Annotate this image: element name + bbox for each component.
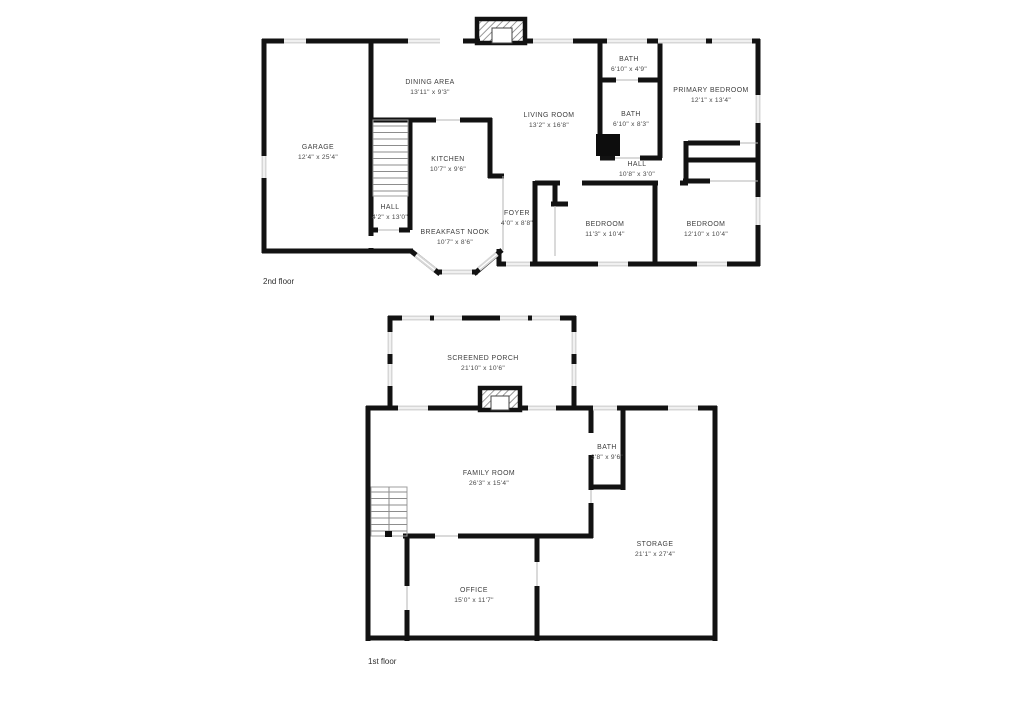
- room-dims-porch: 21'10" x 10'6": [461, 365, 505, 372]
- room-dims-dining: 13'11" x 9'3": [410, 89, 450, 96]
- room-dims-kitchen: 10'7" x 9'6": [430, 166, 466, 173]
- firebox: [492, 28, 512, 43]
- room-label-living: LIVING ROOM: [524, 112, 575, 119]
- room-label-family: FAMILY ROOM: [463, 470, 515, 477]
- room-dims-hall-lower: 4'2" x 13'0": [372, 214, 408, 221]
- firebox: [491, 396, 509, 410]
- room-dims-foyer: 4'0" x 8'8": [501, 220, 533, 227]
- room-label-bath-top: BATH: [619, 56, 639, 63]
- room-dims-bedroom1: 11'3" x 10'4": [585, 231, 625, 238]
- room-dims-breakfast: 10'7" x 8'6": [437, 239, 473, 246]
- room-dims-bath-mid: 6'10" x 8'3": [613, 121, 649, 128]
- room-dims-living: 13'2" x 16'8": [529, 122, 569, 129]
- room-label-hall-lower: HALL: [380, 204, 399, 211]
- room-dims-office: 15'0" x 11'7": [454, 597, 494, 604]
- room-labels-second-floor: GARAGE 12'4" x 25'4" DINING AREA 13'11" …: [298, 56, 749, 246]
- staircase-first-floor: [371, 487, 407, 537]
- room-dims-garage: 12'4" x 25'4": [298, 154, 338, 161]
- floor-plan-svg: GARAGE 12'4" x 25'4" DINING AREA 13'11" …: [0, 0, 1024, 719]
- room-label-bath-mid: BATH: [621, 111, 641, 118]
- room-label-primary: PRIMARY BEDROOM: [673, 87, 748, 94]
- room-label-foyer: FOYER: [504, 210, 530, 217]
- room-dims-hall-upper: 10'8" x 3'0": [619, 171, 655, 178]
- window-stripe: [390, 318, 698, 408]
- stair-treads: [371, 487, 407, 536]
- walls-first-floor: [366, 316, 717, 641]
- stair-treads: [373, 126, 408, 191]
- room-label-garage: GARAGE: [302, 144, 334, 151]
- room-label-dining: DINING AREA: [405, 79, 454, 86]
- floor-plan-canvas: GARAGE 12'4" x 25'4" DINING AREA 13'11" …: [0, 0, 1024, 719]
- room-dims-primary: 12'1" x 13'4": [691, 97, 731, 104]
- room-label-storage: STORAGE: [637, 541, 674, 548]
- room-label-porch: SCREENED PORCH: [447, 355, 518, 362]
- room-dims-storage: 21'1" x 27'4": [635, 551, 675, 558]
- room-dims-bath: 3'8" x 9'6": [591, 454, 623, 461]
- room-label-bath: BATH: [597, 444, 617, 451]
- second-floor-plan: GARAGE 12'4" x 25'4" DINING AREA 13'11" …: [262, 19, 760, 286]
- room-label-bedroom1: BEDROOM: [586, 221, 625, 228]
- chimney-first-floor: [480, 388, 520, 410]
- room-dims-bedroom2: 12'10" x 10'4": [684, 231, 728, 238]
- staircase-second-floor: [373, 120, 408, 196]
- first-floor-plan: SCREENED PORCH 21'10" x 10'6" FAMILY ROO…: [366, 316, 717, 666]
- openings-first-floor: [407, 490, 591, 610]
- room-label-kitchen: KITCHEN: [431, 156, 464, 163]
- chimney-second-floor: [477, 19, 525, 43]
- room-dims-family: 26'3" x 15'4": [469, 480, 509, 487]
- room-label-office: OFFICE: [460, 587, 488, 594]
- room-label-hall-upper: HALL: [627, 161, 646, 168]
- room-label-bedroom2: BEDROOM: [687, 221, 726, 228]
- room-dims-bath-top: 6'10" x 4'9": [611, 66, 647, 73]
- windows-first-floor: [390, 318, 698, 408]
- stair-post: [385, 531, 392, 537]
- first-floor-caption: 1st floor: [368, 657, 397, 666]
- second-floor-caption: 2nd floor: [263, 277, 294, 286]
- room-label-breakfast: BREAKFAST NOOK: [421, 229, 490, 236]
- fireplace-block: [596, 134, 620, 156]
- window-band: [390, 318, 698, 408]
